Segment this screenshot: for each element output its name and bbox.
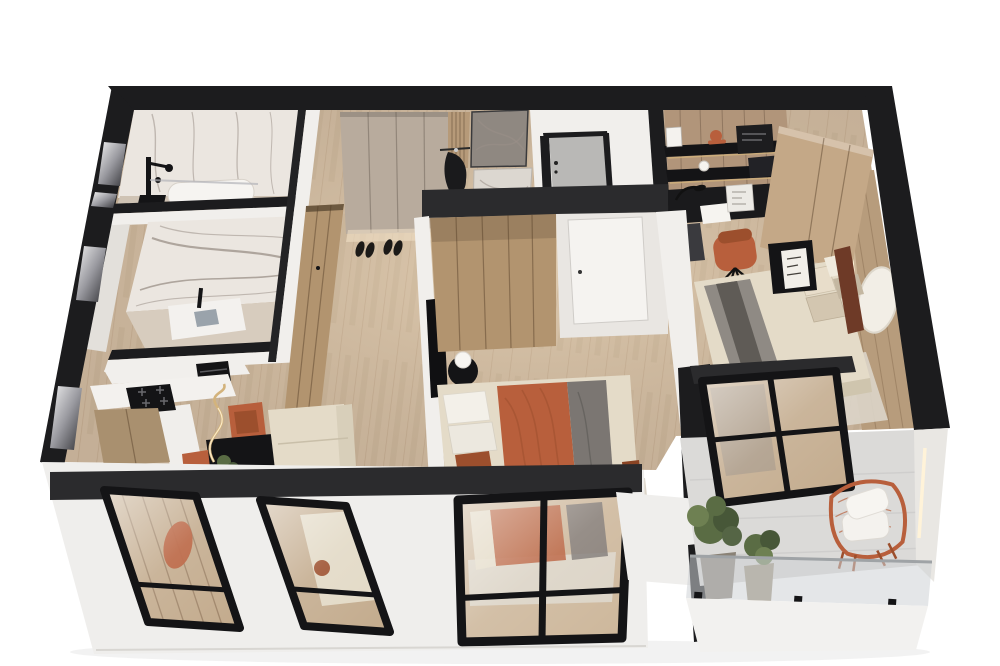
facade bbox=[42, 462, 648, 654]
balcony-door bbox=[702, 371, 851, 503]
bedside-art-card bbox=[781, 248, 810, 289]
kitchen-cabinet-face bbox=[94, 408, 170, 466]
room-shower bbox=[116, 110, 302, 212]
balcony-right-wall bbox=[914, 428, 948, 582]
wall-niche bbox=[91, 192, 117, 208]
marble-art-panel-dark bbox=[471, 110, 528, 167]
vanity-towel bbox=[194, 309, 219, 327]
desk-calendar-card bbox=[666, 127, 682, 147]
front-door-panel bbox=[549, 136, 607, 194]
door-lock-dot bbox=[554, 170, 557, 173]
bedroom-door-handle bbox=[578, 270, 582, 274]
balcony-front-slab bbox=[686, 598, 928, 652]
floor-plan-render bbox=[0, 0, 1000, 666]
railing-glass bbox=[686, 556, 932, 606]
bathroom-marble-wall bbox=[126, 216, 302, 312]
wardrobe-shade bbox=[430, 214, 556, 242]
shelf-frames-black bbox=[736, 124, 774, 154]
shower-head bbox=[165, 164, 173, 172]
window-bedroom bbox=[458, 492, 628, 642]
bed-pillow bbox=[448, 422, 497, 454]
top-wall bbox=[108, 86, 890, 110]
window-mullion bbox=[542, 496, 544, 640]
dining-chair-seat-shade bbox=[234, 410, 259, 434]
bed-pillow bbox=[443, 391, 490, 424]
desk-paper bbox=[700, 203, 731, 224]
shelf-mug bbox=[699, 161, 709, 171]
unit-handle bbox=[316, 266, 320, 270]
sphere-lamp bbox=[455, 352, 471, 368]
hanger-hook bbox=[454, 148, 458, 152]
floor-plan-svg bbox=[0, 0, 1000, 666]
door-handle-dot bbox=[554, 161, 558, 165]
